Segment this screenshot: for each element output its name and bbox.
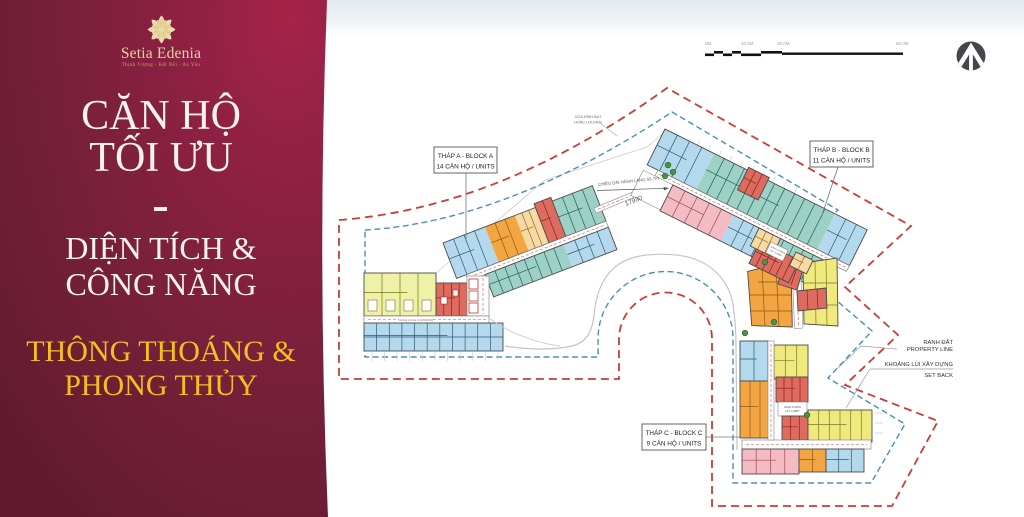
svg-text:THÁP C - BLOCK C: THÁP C - BLOCK C (645, 428, 702, 437)
svg-text:20.0M: 20.0M (777, 41, 790, 46)
svg-text:LIFT LOBBY: LIFT LOBBY (785, 409, 800, 413)
svg-text:HOẶC LOUVER: HOẶC LOUVER (574, 121, 602, 125)
svg-text:50.0M: 50.0M (896, 41, 909, 46)
svg-text:SET BACK: SET BACK (924, 373, 953, 379)
svg-text:CỬA KÍNH BẠT: CỬA KÍNH BẠT (575, 114, 603, 119)
svg-text:14 CĂN HỘ / UNITS: 14 CĂN HỘ / UNITS (436, 161, 494, 170)
svg-text:0M: 0M (705, 41, 712, 46)
svg-text:11 CĂN HỘ / UNITS: 11 CĂN HỘ / UNITS (813, 155, 871, 164)
svg-text:PROPERTY LINE: PROPERTY LINE (907, 347, 953, 353)
svg-text:KHOẢNG LÙI XÂY DỰNG: KHOẢNG LÙI XÂY DỰNG (885, 361, 954, 368)
svg-text:HÀNH LANG CORRIDOR: HÀNH LANG CORRIDOR (399, 318, 435, 322)
svg-text:RANH ĐẤT: RANH ĐẤT (923, 339, 953, 346)
svg-text:THÁP B - BLOCK B: THÁP B - BLOCK B (813, 145, 869, 154)
svg-text:9 CĂN HỘ / UNITS: 9 CĂN HỘ / UNITS (647, 438, 702, 447)
svg-text:THÁP A - BLOCK A: THÁP A - BLOCK A (438, 151, 494, 160)
svg-text:10.0M: 10.0M (741, 41, 754, 46)
